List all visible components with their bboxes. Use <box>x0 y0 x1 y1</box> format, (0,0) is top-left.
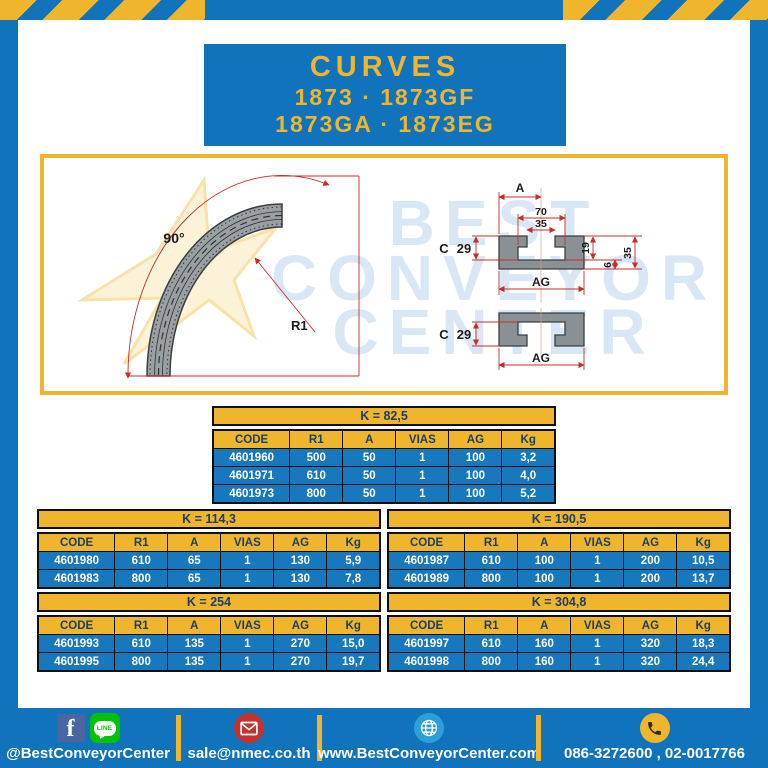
dim-6-label: 6 <box>602 262 614 268</box>
table-row: 46019838006511307,8 <box>38 570 380 589</box>
table-cell: 4601960 <box>213 449 290 467</box>
table-row: 46019806106511305,9 <box>38 552 380 570</box>
table-cell: 610 <box>290 467 343 485</box>
page-title: CURVES <box>310 52 460 84</box>
column-header: VIAS <box>571 533 624 552</box>
table-cell: 4601998 <box>388 653 465 672</box>
table-row: 46019738005011005,2 <box>213 485 555 504</box>
table-cell: 1 <box>571 552 624 570</box>
table-cell: 135 <box>168 635 221 653</box>
dim-29-label: 29 <box>457 241 471 256</box>
table-cell: 130 <box>274 552 327 570</box>
column-header: VIAS <box>221 616 274 635</box>
table-cell: 100 <box>449 449 502 467</box>
website-url[interactable]: www.BestConveyorCenter.com <box>318 745 540 762</box>
header-title-box: CURVES 1873 · 1873GF 1873GA · 1873EG <box>204 44 566 146</box>
table-header-row: CODER1AVIASAGKg <box>38 616 380 635</box>
table-cell: 1 <box>571 653 624 672</box>
spec-table-k304-8: K = 304,8 CODER1AVIASAGKg460199761016013… <box>387 592 731 672</box>
table-cell: 1 <box>221 552 274 570</box>
column-header: R1 <box>115 616 168 635</box>
column-header: Kg <box>327 533 380 552</box>
radius-label: R1 <box>291 318 308 333</box>
table-title: K = 304,8 <box>387 592 731 612</box>
spec-table-k82-5: K = 82,5 CODER1AVIASAGKg4601960500501100… <box>212 406 556 504</box>
table-cell: 5,2 <box>502 485 555 504</box>
table-row: 4601998800160132024,4 <box>388 653 730 672</box>
model-numbers-line1: 1873 · 1873GF <box>295 84 476 111</box>
column-header: A <box>343 430 396 449</box>
hazard-stripes-right <box>563 0 768 20</box>
table-cell: 100 <box>449 485 502 504</box>
table-cell: 24,4 <box>677 653 730 672</box>
table-header-row: CODER1AVIASAGKg <box>213 430 555 449</box>
table-cell: 4601971 <box>213 467 290 485</box>
table-cell: 1 <box>396 467 449 485</box>
footer-email-section: sale@nmec.co.th <box>181 708 317 768</box>
dim-a-label: A <box>516 181 525 195</box>
table-cell: 18,3 <box>677 635 730 653</box>
table-cell: 50 <box>343 485 396 504</box>
curve-diagram: BEST CONVEYOR CENTER 90° <box>44 158 724 391</box>
table-cell: 800 <box>115 570 168 589</box>
table-cell: 160 <box>518 635 571 653</box>
column-header: Kg <box>502 430 555 449</box>
table-cell: 610 <box>115 552 168 570</box>
column-header: AG <box>449 430 502 449</box>
column-header: A <box>168 616 221 635</box>
column-header: AG <box>624 533 677 552</box>
email-icon[interactable] <box>234 713 264 743</box>
dim-29-2-label: 29 <box>457 327 471 342</box>
column-header: CODE <box>388 616 465 635</box>
spec-table: CODER1AVIASAGKg4601987610100120010,54601… <box>387 532 731 589</box>
table-cell: 65 <box>168 552 221 570</box>
table-header-row: CODER1AVIASAGKg <box>388 533 730 552</box>
table-cell: 1 <box>571 635 624 653</box>
column-header: VIAS <box>221 533 274 552</box>
tables-grid: K = 114,3 CODER1AVIASAGKg460198061065113… <box>37 509 731 672</box>
table-cell: 13,7 <box>677 570 730 589</box>
angle-label: 90° <box>163 230 184 246</box>
table-cell: 19,7 <box>327 653 380 672</box>
footer-phone-section: 086-3272600 , 02-0017766 <box>541 708 768 768</box>
table-cell: 4601980 <box>38 552 115 570</box>
table-row: 4601997610160132018,3 <box>388 635 730 653</box>
line-app-icon[interactable]: LINE <box>90 713 120 743</box>
column-header: R1 <box>465 533 518 552</box>
column-header: Kg <box>677 616 730 635</box>
column-header: A <box>168 533 221 552</box>
dim-c2-label: C <box>439 327 449 342</box>
spec-table-k114-3: K = 114,3 CODER1AVIASAGKg460198061065113… <box>37 509 381 589</box>
catalog-page: CURVES 1873 · 1873GF 1873GA · 1873EG BES… <box>0 0 768 768</box>
table-cell: 7,8 <box>327 570 380 589</box>
table-cell: 4601983 <box>38 570 115 589</box>
column-header: CODE <box>213 430 290 449</box>
table-cell: 4601973 <box>213 485 290 504</box>
dim-ag-top-label: AG <box>532 275 550 289</box>
globe-icon[interactable] <box>414 713 444 743</box>
table-cell: 1 <box>221 653 274 672</box>
frame-border-right <box>750 20 768 768</box>
table-header-row: CODER1AVIASAGKg <box>38 533 380 552</box>
table-cell: 1 <box>571 570 624 589</box>
table-cell: 50 <box>343 467 396 485</box>
table-cell: 1 <box>396 449 449 467</box>
column-header: Kg <box>327 616 380 635</box>
table-cell: 200 <box>624 570 677 589</box>
table-cell: 10,5 <box>677 552 730 570</box>
dim-c-label: C <box>439 241 449 256</box>
column-header: CODE <box>388 533 465 552</box>
phone-icon[interactable] <box>640 713 670 743</box>
table-cell: 100 <box>449 467 502 485</box>
column-header: R1 <box>115 533 168 552</box>
watermark-line3: CENTER <box>332 296 655 368</box>
table-row: 4601995800135127019,7 <box>38 653 380 672</box>
spec-table-k254: K = 254 CODER1AVIASAGKg46019936101351270… <box>37 592 381 672</box>
table-title: K = 254 <box>37 592 381 612</box>
spec-table: CODER1AVIASAGKg4601993610135127015,04601… <box>37 615 381 672</box>
table-cell: 130 <box>274 570 327 589</box>
phone-numbers[interactable]: 086-3272600 , 02-0017766 <box>564 745 745 762</box>
table-cell: 4601987 <box>388 552 465 570</box>
dim-35-right-label: 35 <box>622 247 634 259</box>
table-cell: 135 <box>168 653 221 672</box>
table-cell: 3,2 <box>502 449 555 467</box>
column-header: AG <box>274 616 327 635</box>
dim-35-top-label: 35 <box>535 218 547 230</box>
table-cell: 270 <box>274 635 327 653</box>
spec-table-k190-5: K = 190,5 CODER1AVIASAGKg460198761010012… <box>387 509 731 589</box>
table-row: 46019716105011004,0 <box>213 467 555 485</box>
column-header: AG <box>274 533 327 552</box>
column-header: R1 <box>290 430 343 449</box>
table-cell: 800 <box>465 653 518 672</box>
column-header: A <box>518 533 571 552</box>
dim-ag-bottom-label: AG <box>532 351 550 365</box>
table-cell: 100 <box>518 570 571 589</box>
frame-border-left <box>0 20 18 768</box>
table-cell: 320 <box>624 653 677 672</box>
table-cell: 160 <box>518 653 571 672</box>
spec-table: CODER1AVIASAGKg46019605005011003,2460197… <box>212 429 556 504</box>
column-header: VIAS <box>571 616 624 635</box>
dim-70-label: 70 <box>535 206 547 218</box>
column-header: CODE <box>38 533 115 552</box>
table-cell: 320 <box>624 635 677 653</box>
hazard-band-middle <box>205 0 563 20</box>
table-row: 4601989800100120013,7 <box>388 570 730 589</box>
hazard-stripe-band <box>0 0 768 20</box>
watermark-text: BEST CONVEYOR CENTER <box>271 187 717 368</box>
table-row: 4601993610135127015,0 <box>38 635 380 653</box>
table-row: 4601987610100120010,5 <box>388 552 730 570</box>
table-cell: 200 <box>624 552 677 570</box>
table-cell: 800 <box>115 653 168 672</box>
hazard-stripes-left <box>0 0 205 20</box>
column-header: A <box>518 616 571 635</box>
table-cell: 800 <box>465 570 518 589</box>
table-title: K = 114,3 <box>37 509 381 529</box>
table-header-row: CODER1AVIASAGKg <box>388 616 730 635</box>
column-header: R1 <box>465 616 518 635</box>
table-cell: 4601997 <box>388 635 465 653</box>
table-cell: 4601993 <box>38 635 115 653</box>
technical-drawing-box: BEST CONVEYOR CENTER 90° <box>40 154 728 395</box>
table-cell: 100 <box>518 552 571 570</box>
column-header: CODE <box>38 616 115 635</box>
table-cell: 5,9 <box>327 552 380 570</box>
table-cell: 500 <box>290 449 343 467</box>
table-cell: 610 <box>465 552 518 570</box>
table-cell: 610 <box>465 635 518 653</box>
table-cell: 4601995 <box>38 653 115 672</box>
column-header: VIAS <box>396 430 449 449</box>
table-cell: 4,0 <box>502 467 555 485</box>
table-row: 46019605005011003,2 <box>213 449 555 467</box>
table-cell: 1 <box>221 635 274 653</box>
table-cell: 800 <box>290 485 343 504</box>
table-cell: 1 <box>221 570 274 589</box>
table-title: K = 82,5 <box>212 406 556 426</box>
facebook-handle[interactable]: @BestConveyorCenter <box>6 745 170 762</box>
table-cell: 15,0 <box>327 635 380 653</box>
dim-19-label: 19 <box>580 242 592 254</box>
model-numbers-line2: 1873GA · 1873EG <box>275 111 495 138</box>
spec-table: CODER1AVIASAGKg46019806106511305,9460198… <box>37 532 381 589</box>
email-address[interactable]: sale@nmec.co.th <box>187 745 310 762</box>
table-cell: 65 <box>168 570 221 589</box>
footer-social-section: f LINE @BestConveyorCenter <box>0 708 176 768</box>
spec-table: CODER1AVIASAGKg4601997610160132018,34601… <box>387 615 731 672</box>
table-cell: 1 <box>396 485 449 504</box>
facebook-icon[interactable]: f <box>57 714 85 742</box>
table-cell: 270 <box>274 653 327 672</box>
table-cell: 4601989 <box>388 570 465 589</box>
footer-website-section: www.BestConveyorCenter.com <box>322 708 536 768</box>
table-cell: 50 <box>343 449 396 467</box>
column-header: AG <box>624 616 677 635</box>
footer-contact-bar: f LINE @BestConveyorCenter sale@nmec.co.… <box>0 708 768 768</box>
line-badge-label: LINE <box>97 725 113 732</box>
table-cell: 610 <box>115 635 168 653</box>
column-header: Kg <box>677 533 730 552</box>
table-title: K = 190,5 <box>387 509 731 529</box>
